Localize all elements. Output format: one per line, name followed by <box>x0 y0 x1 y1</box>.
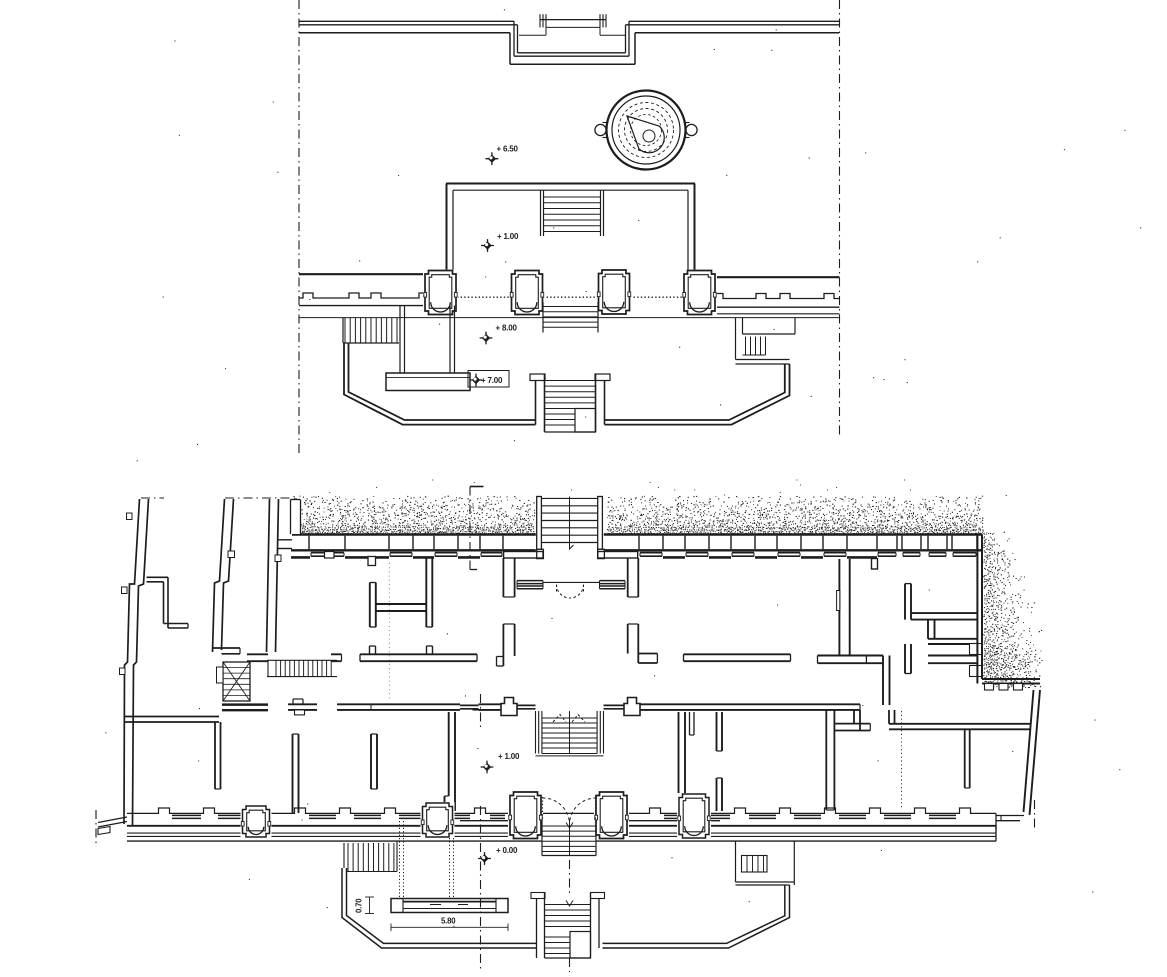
svg-text:0.70: 0.70 <box>355 898 364 913</box>
svg-text:+ 1.00: + 1.00 <box>497 232 519 241</box>
svg-text:+ 1.00: + 1.00 <box>498 752 520 761</box>
svg-text:+ 6.50: + 6.50 <box>497 145 519 154</box>
svg-text:+ 7.00: + 7.00 <box>481 376 503 385</box>
svg-text:+ 0.00: + 0.00 <box>496 846 518 855</box>
svg-text:+ 8.00: + 8.00 <box>496 324 518 333</box>
svg-text:5.80: 5.80 <box>441 917 456 926</box>
